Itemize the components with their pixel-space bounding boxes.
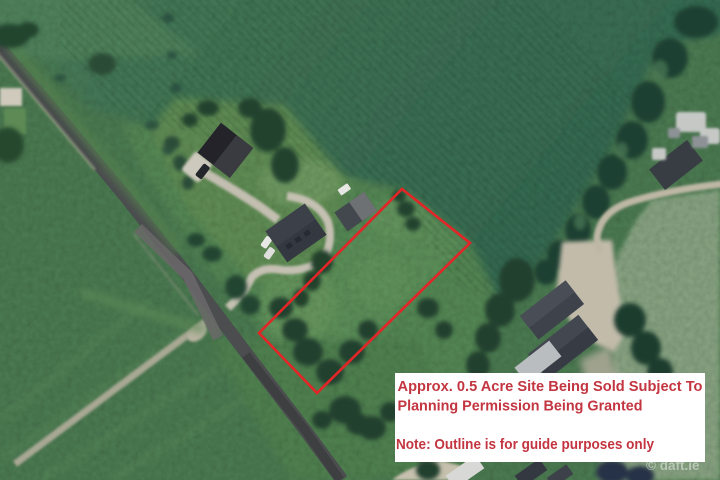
svg-text:Note: Outline is for guide pur: Note: Outline is for guide purposes only	[396, 436, 655, 453]
svg-text:© daft.ie: © daft.ie	[646, 458, 700, 473]
svg-text:Planning Permission Being Gran: Planning Permission Being Granted	[398, 398, 643, 415]
svg-text:Approx. 0.5 Acre Site Being So: Approx. 0.5 Acre Site Being Sold Subject…	[398, 378, 703, 395]
